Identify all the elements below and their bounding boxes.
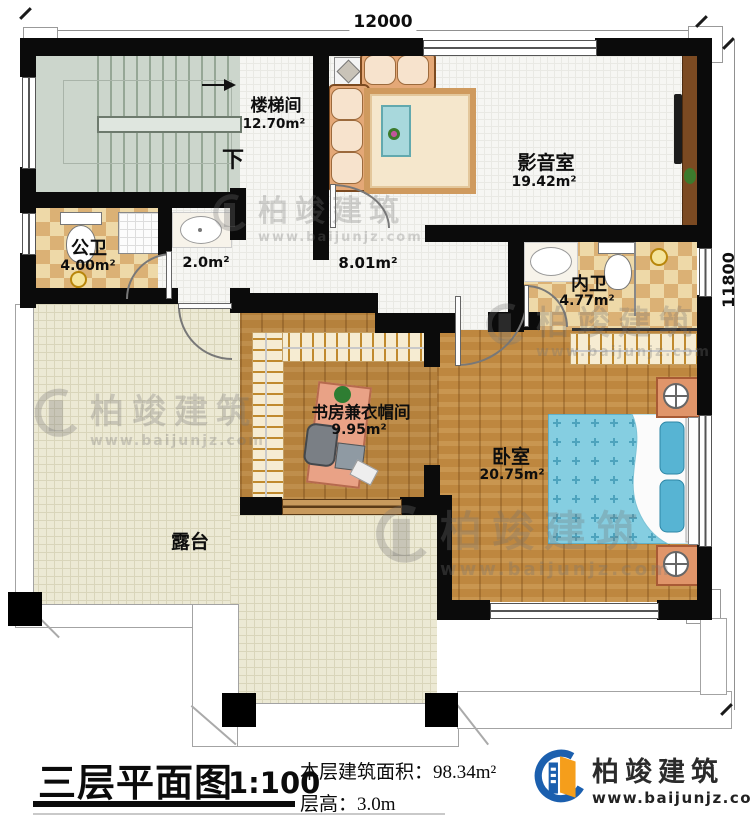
window bbox=[490, 603, 659, 619]
wall-segment bbox=[230, 188, 246, 240]
window bbox=[699, 415, 712, 547]
toilet-icon bbox=[60, 212, 102, 225]
wall-segment bbox=[230, 293, 378, 313]
wall-segment bbox=[20, 38, 36, 77]
wall-segment bbox=[697, 38, 712, 248]
tv-icon bbox=[674, 94, 682, 164]
wall-segment bbox=[697, 295, 712, 415]
study-wardrobe-top bbox=[282, 332, 436, 362]
room-area-washroom: 2.0m² bbox=[182, 256, 229, 271]
shower-head-icon bbox=[650, 248, 668, 266]
shower-divider bbox=[634, 242, 636, 316]
sink-drain-dot bbox=[198, 228, 202, 232]
column bbox=[425, 693, 458, 727]
wall-segment bbox=[240, 497, 282, 515]
floor-height-text: 层高：3.0m bbox=[300, 789, 396, 816]
wall-segment bbox=[425, 225, 712, 242]
plant-icon bbox=[684, 168, 696, 184]
room-area-media: 19.42m² bbox=[511, 175, 576, 189]
room-area-bedroom: 20.75m² bbox=[479, 468, 544, 482]
parapet-walkway bbox=[15, 304, 34, 628]
room-label-media: 影音室 bbox=[517, 154, 574, 173]
room-label-stairwell: 楼梯间 bbox=[251, 98, 302, 115]
wall-segment bbox=[375, 313, 457, 333]
wall-segment bbox=[657, 600, 712, 620]
window bbox=[22, 213, 36, 255]
plan-title: 三层平面图 bbox=[38, 752, 233, 807]
terrace-floor bbox=[230, 515, 437, 705]
room-area-study: 9.95m² bbox=[331, 423, 386, 437]
door-panel bbox=[178, 303, 232, 309]
nightstand-lamp-icon bbox=[663, 383, 689, 409]
toilet-icon bbox=[598, 242, 636, 254]
wall-segment bbox=[158, 197, 172, 255]
wall-line bbox=[572, 328, 697, 331]
wall-segment bbox=[20, 38, 423, 56]
study-wardrobe-left bbox=[252, 332, 284, 499]
brand-logo-icon bbox=[534, 748, 584, 808]
floor-area-text: 本层建筑面积：98.34m² bbox=[300, 757, 496, 784]
nightstand-lamp-icon bbox=[663, 551, 689, 577]
sink-icon bbox=[530, 247, 572, 276]
room-area-public-bathroom: 4.00m² bbox=[60, 259, 115, 273]
room-area-ensuite: 4.77m² bbox=[559, 294, 614, 308]
sofa-cushion bbox=[331, 88, 363, 120]
right-dimension-line bbox=[734, 40, 735, 710]
column bbox=[222, 693, 256, 727]
room-area-hallway: 8.01m² bbox=[338, 256, 397, 271]
room-label-study: 书房兼衣帽间 bbox=[312, 405, 411, 422]
dimension-height-label: 11800 bbox=[721, 252, 737, 308]
column bbox=[8, 592, 42, 626]
plant-icon bbox=[334, 386, 351, 403]
door-panel bbox=[330, 184, 336, 228]
door-panel bbox=[524, 285, 529, 327]
window-door bbox=[282, 499, 402, 515]
wall-segment bbox=[437, 495, 452, 605]
room-area-stairwell: 12.70m² bbox=[243, 118, 306, 132]
wall-segment bbox=[20, 167, 36, 213]
room-label-terrace: 露台 bbox=[171, 533, 209, 552]
bed bbox=[548, 414, 697, 544]
stair-direction-arrow bbox=[202, 84, 224, 86]
parapet-walkway bbox=[700, 618, 727, 695]
shower-icon bbox=[118, 212, 160, 254]
wall-segment bbox=[313, 38, 329, 260]
sofa-cushion bbox=[331, 152, 363, 184]
brand-name: 柏竣建筑 bbox=[592, 750, 750, 789]
floor-plan: 12000 11800 bbox=[0, 0, 750, 821]
bedroom-wardrobe bbox=[570, 333, 699, 365]
room-label-bedroom: 卧室 bbox=[492, 448, 530, 467]
dimension-tick bbox=[19, 7, 32, 20]
door-panel bbox=[455, 296, 461, 366]
tv-cabinet bbox=[682, 56, 698, 226]
wall-segment bbox=[424, 313, 440, 367]
title-underline-thick bbox=[33, 801, 295, 807]
window bbox=[22, 77, 36, 169]
stair-arrow-head-icon bbox=[224, 79, 236, 91]
sofa-cushion bbox=[331, 120, 363, 152]
room-label-ensuite: 内卫 bbox=[571, 276, 607, 294]
parapet-walkway bbox=[457, 691, 732, 729]
wall-segment bbox=[595, 38, 712, 56]
sofa-cushion bbox=[397, 55, 429, 85]
window-sill bbox=[688, 417, 699, 545]
window bbox=[699, 248, 712, 297]
wall-segment bbox=[36, 192, 246, 208]
toilet-icon bbox=[604, 254, 632, 290]
room-label-public-bathroom: 公卫 bbox=[71, 240, 107, 258]
brand-website: www.baijunjz.com bbox=[592, 789, 750, 807]
window bbox=[423, 40, 597, 56]
stair-direction-label: 下 bbox=[222, 150, 244, 172]
stair-railing bbox=[97, 116, 242, 133]
dimension-tick bbox=[722, 37, 735, 50]
flower-decor-icon bbox=[388, 128, 400, 140]
dimension-width-label: 12000 bbox=[349, 14, 416, 31]
brand-logo: 柏竣建筑 www.baijunjz.com bbox=[534, 748, 750, 808]
sofa-cushion bbox=[364, 55, 396, 85]
door-panel bbox=[166, 251, 172, 299]
